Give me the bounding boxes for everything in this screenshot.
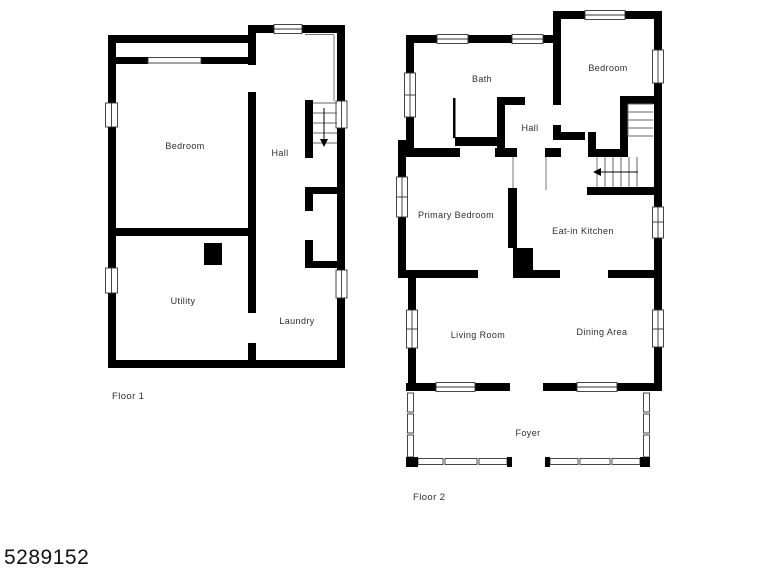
room-label-floor2-eat-in-kitchen: Eat-in Kitchen (552, 226, 614, 236)
floor2-chimney (513, 248, 533, 278)
room-label-floor2-bedroom: Bedroom (588, 63, 627, 73)
listing-id: 5289152 (4, 546, 89, 570)
room-label-floor2-hall: Hall (521, 123, 538, 133)
floor1-chimney (204, 243, 222, 265)
room-label-floor2-foyer: Foyer (515, 428, 540, 438)
floor1-title: Floor 1 (112, 391, 144, 402)
room-label-floor2-bath: Bath (472, 74, 492, 84)
floor2-plan (397, 11, 664, 468)
room-label-floor1-laundry: Laundry (279, 316, 314, 326)
floorplan-page: Bedroom Hall Utility Laundry Bath Bedroo… (0, 0, 768, 576)
room-label-floor1-bedroom: Bedroom (165, 141, 204, 151)
room-label-floor2-living-room: Living Room (451, 330, 505, 340)
floor1-staircase (313, 103, 337, 147)
room-label-floor2-primary-bedroom: Primary Bedroom (418, 210, 494, 220)
room-label-floor2-dining-area: Dining Area (577, 327, 628, 337)
room-label-floor1-hall: Hall (271, 148, 288, 158)
floor2-title: Floor 2 (413, 492, 445, 503)
room-label-floor1-utility: Utility (171, 296, 196, 306)
floorplan-drawing (0, 0, 768, 576)
